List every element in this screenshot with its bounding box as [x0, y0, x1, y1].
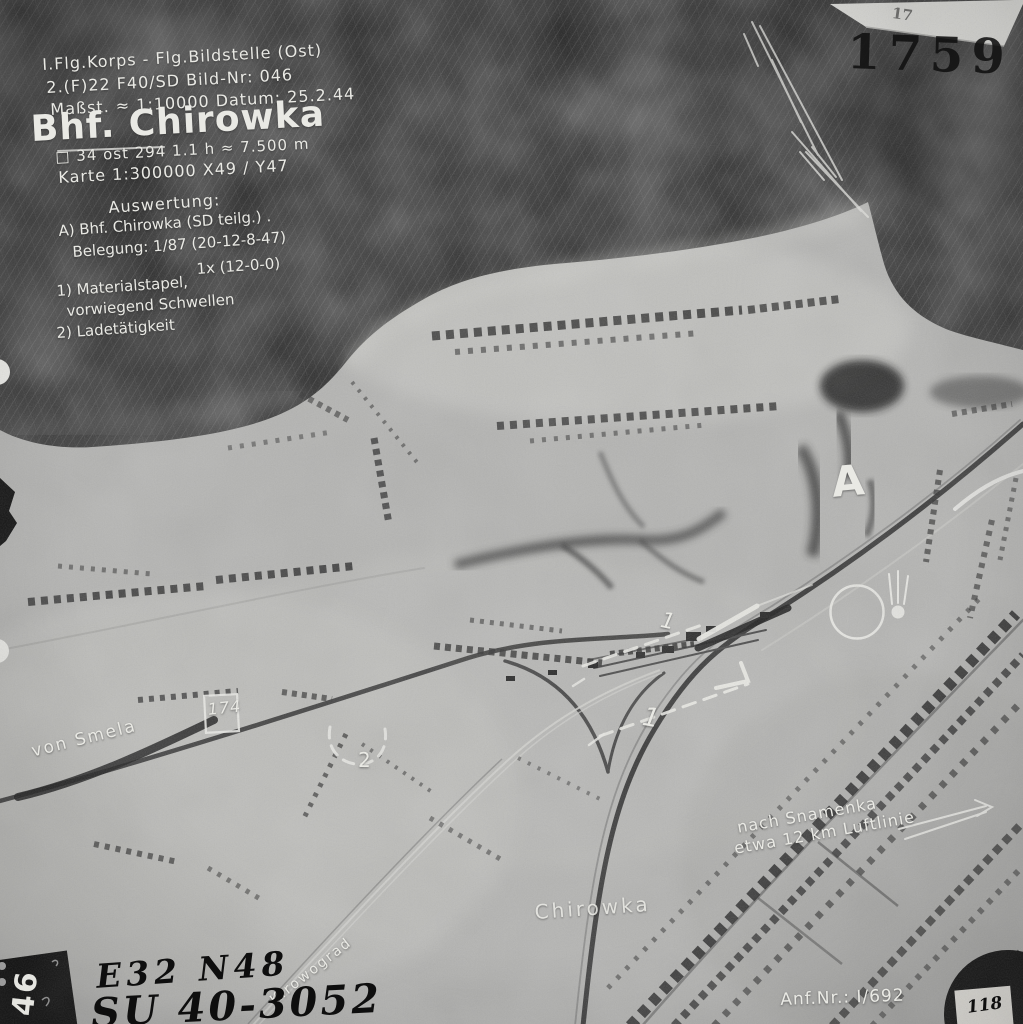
request-number: Anf.Nr.: I/692	[780, 988, 905, 1009]
corner-note: 118	[966, 995, 1004, 1017]
reconnaissance-photo: I.Flg.Korps - Flg.Bildstelle (Ost) 2.(F)…	[0, 0, 1023, 1024]
marker-a: A	[830, 459, 866, 504]
marker-2: 2	[358, 750, 371, 770]
serial-stamp-faint: 17	[891, 6, 914, 24]
box-number: 174	[207, 698, 242, 717]
serial-stamp: 1759	[846, 28, 1013, 82]
